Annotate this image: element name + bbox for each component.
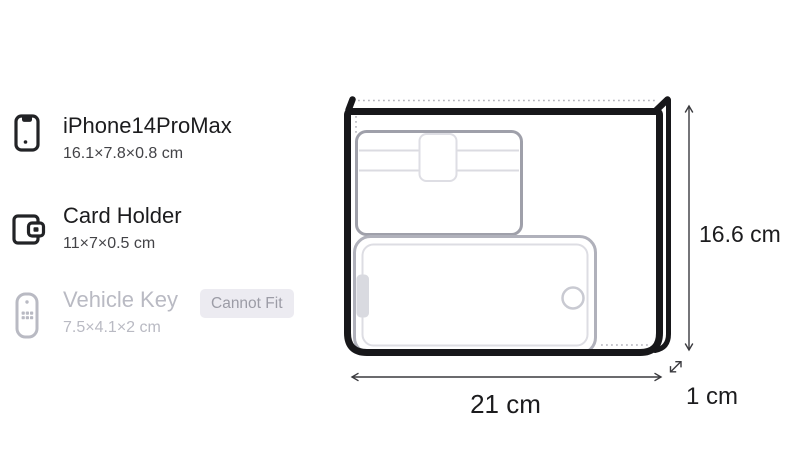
phone-dynamic-island xyxy=(357,275,370,318)
phone-camera-circle xyxy=(563,288,584,309)
bag-corner-tab-left xyxy=(349,100,353,111)
height-dimension-label: 16.6 cm xyxy=(699,221,781,248)
bag-diagram-svg xyxy=(0,0,800,455)
width-dimension-label: 21 cm xyxy=(349,389,662,420)
width-dimension-arrow xyxy=(352,373,661,381)
depth-dimension-arrow-icon xyxy=(671,362,682,372)
phone-outline xyxy=(355,237,596,354)
card-holder-outline xyxy=(357,132,522,235)
bag-corner-tab-right xyxy=(657,100,668,111)
bag-fit-diagram: iPhone14ProMax 16.1×7.8×0.8 cm Card Hold… xyxy=(0,0,800,455)
height-dimension-arrow xyxy=(685,106,693,350)
card-holder-tab xyxy=(420,134,457,181)
depth-dimension-label: 1 cm xyxy=(686,383,738,411)
